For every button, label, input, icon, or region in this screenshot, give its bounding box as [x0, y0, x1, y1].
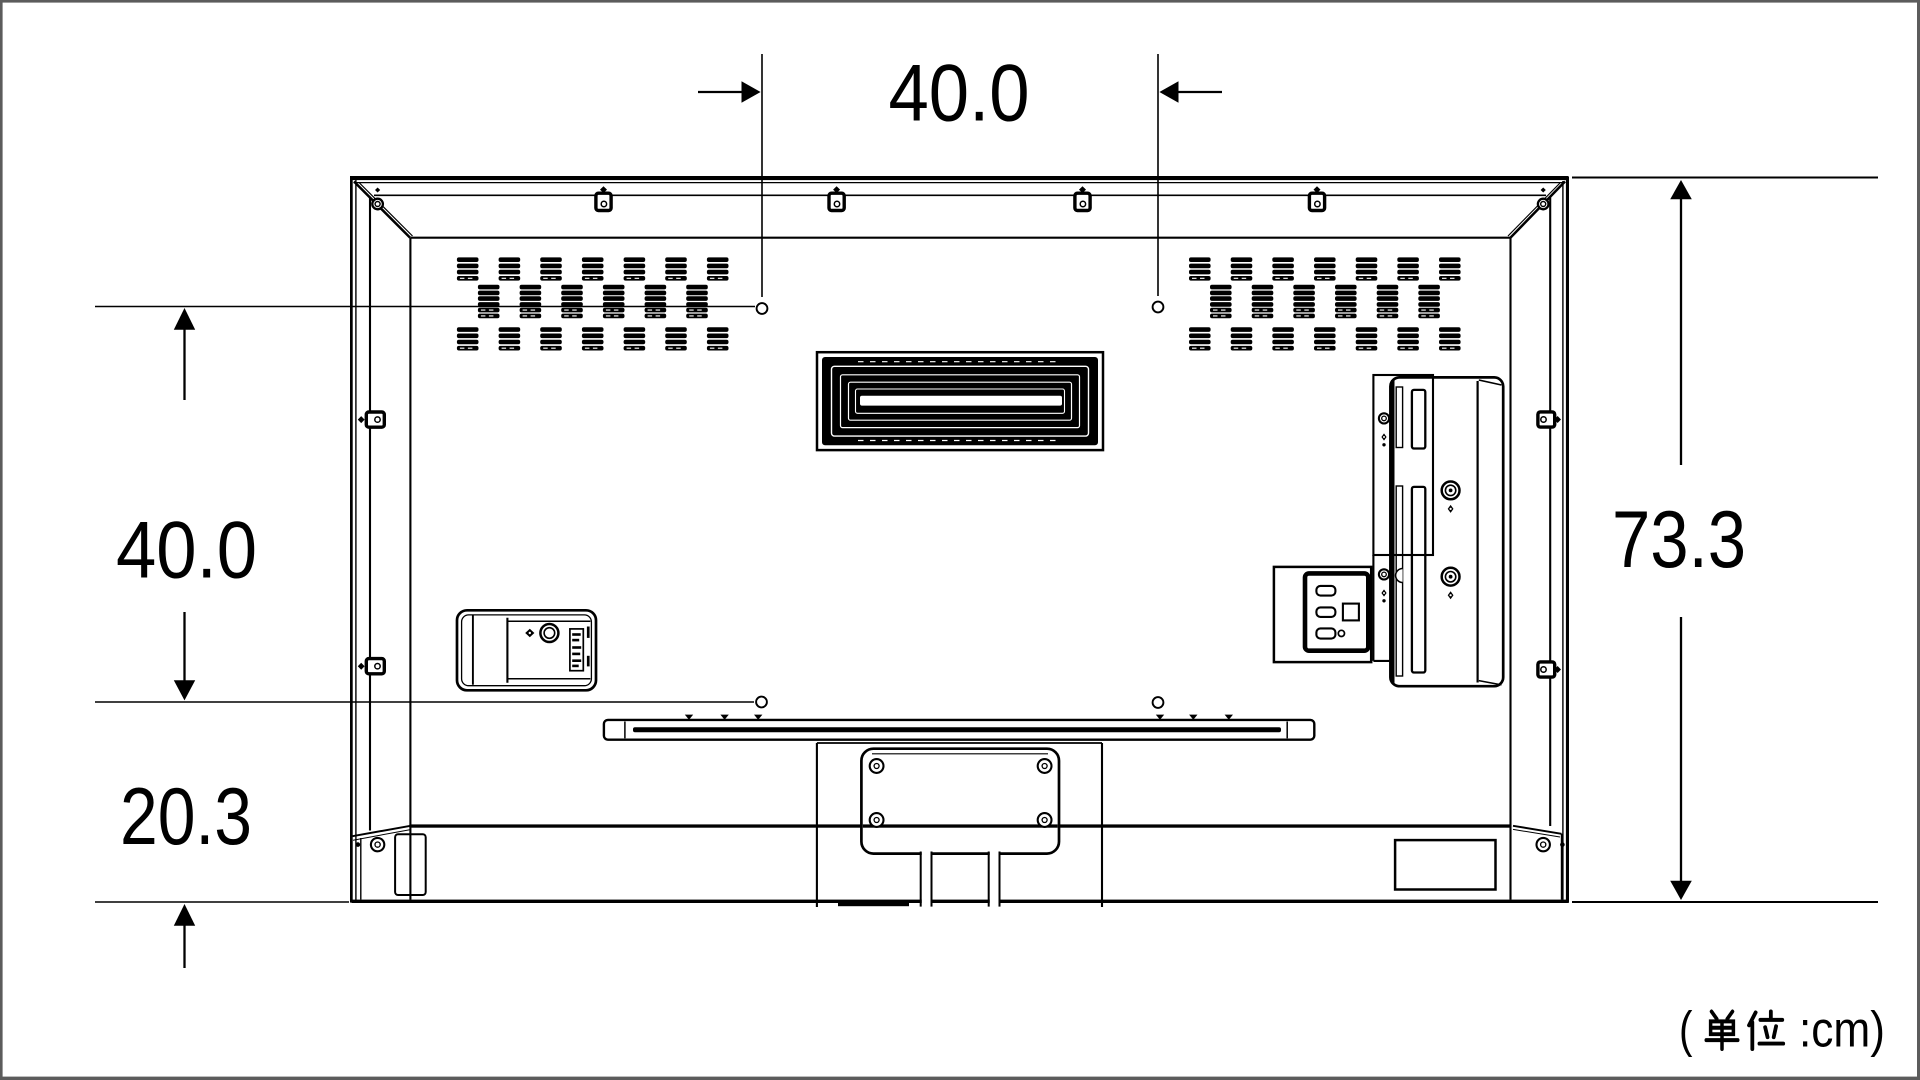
svg-text:40.0: 40.0: [116, 506, 257, 596]
svg-text:40.0: 40.0: [889, 49, 1030, 139]
svg-text:(: (: [1679, 1002, 1693, 1058]
svg-text:20.3: 20.3: [120, 772, 252, 862]
svg-text::cm): :cm): [1799, 1002, 1885, 1058]
svg-text:73.3: 73.3: [1612, 495, 1746, 585]
